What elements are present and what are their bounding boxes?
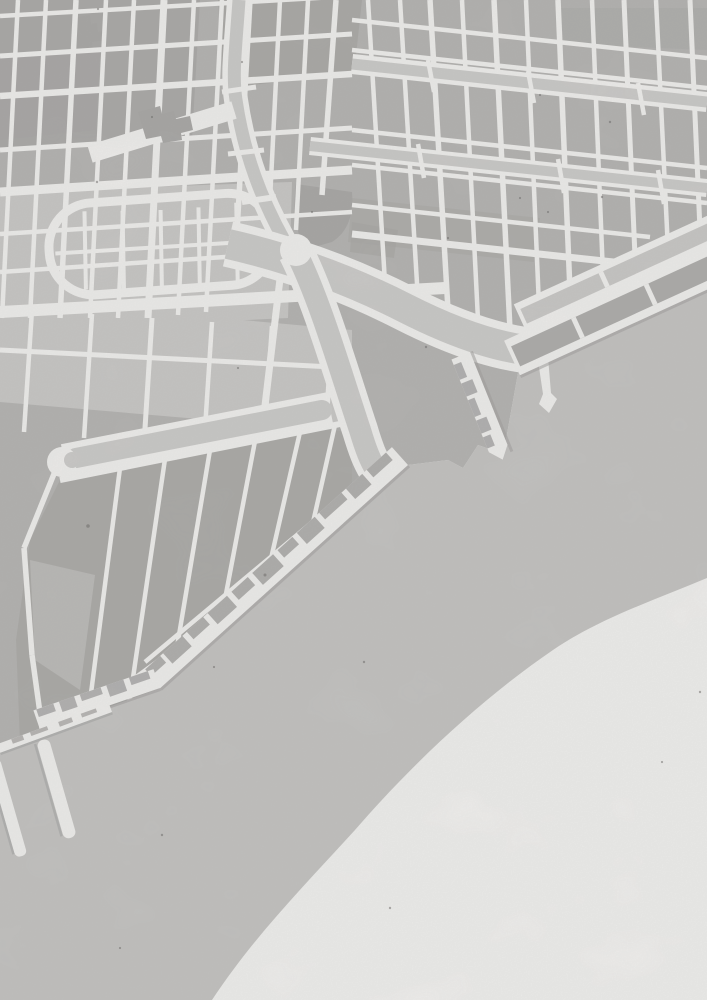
paper-texture (0, 0, 707, 1000)
map-poster (0, 0, 707, 1000)
city-map-artwork (0, 0, 707, 1000)
paper-grain (0, 0, 707, 1000)
